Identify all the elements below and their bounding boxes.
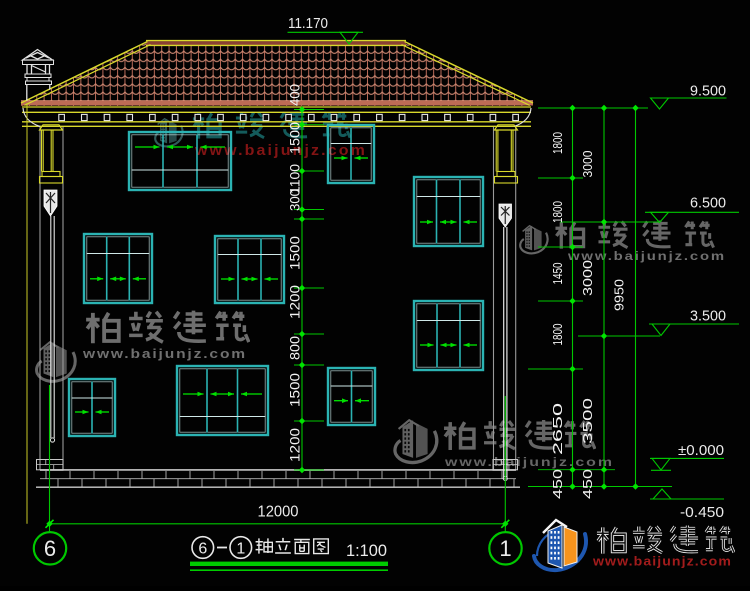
svg-text:3500: 3500 bbox=[581, 398, 595, 444]
svg-text:www.baijunjz.com: www.baijunjz.com bbox=[82, 347, 247, 361]
svg-text:1200: 1200 bbox=[288, 428, 303, 462]
svg-text:450: 450 bbox=[551, 469, 565, 499]
svg-text:3000: 3000 bbox=[581, 150, 595, 177]
svg-text:www.baijunjz.com: www.baijunjz.com bbox=[444, 455, 614, 469]
svg-text:3000: 3000 bbox=[581, 260, 595, 296]
svg-text:1200: 1200 bbox=[288, 285, 303, 319]
svg-text:450: 450 bbox=[581, 469, 595, 499]
svg-text:9950: 9950 bbox=[612, 279, 627, 311]
svg-text:±0.000: ±0.000 bbox=[678, 443, 724, 459]
svg-text:1: 1 bbox=[499, 536, 511, 561]
svg-text:1800: 1800 bbox=[551, 323, 565, 345]
svg-text:11.170: 11.170 bbox=[288, 16, 328, 32]
svg-text:400: 400 bbox=[288, 84, 303, 106]
svg-text:2650: 2650 bbox=[551, 403, 565, 455]
svg-text:300: 300 bbox=[288, 189, 303, 211]
svg-text:9.500: 9.500 bbox=[690, 84, 726, 100]
svg-text:6: 6 bbox=[198, 540, 207, 557]
svg-text:1500: 1500 bbox=[288, 373, 303, 407]
svg-text:1:100: 1:100 bbox=[346, 542, 387, 560]
svg-text:www.baijunjz.com: www.baijunjz.com bbox=[194, 142, 367, 159]
svg-text:1500: 1500 bbox=[288, 236, 303, 270]
svg-text:1800: 1800 bbox=[551, 132, 565, 154]
svg-text:800: 800 bbox=[288, 336, 303, 360]
svg-text:www.baijunjz.com: www.baijunjz.com bbox=[592, 554, 732, 569]
svg-text:-0.450: -0.450 bbox=[680, 505, 724, 521]
svg-text:12000: 12000 bbox=[258, 504, 299, 521]
svg-text:6.500: 6.500 bbox=[690, 196, 726, 212]
svg-text:1800: 1800 bbox=[551, 201, 565, 223]
svg-text:6: 6 bbox=[44, 536, 56, 561]
svg-text:1500: 1500 bbox=[288, 122, 303, 154]
svg-text:3.500: 3.500 bbox=[690, 309, 726, 325]
svg-text:1: 1 bbox=[236, 540, 245, 557]
svg-text:1450: 1450 bbox=[551, 262, 565, 284]
